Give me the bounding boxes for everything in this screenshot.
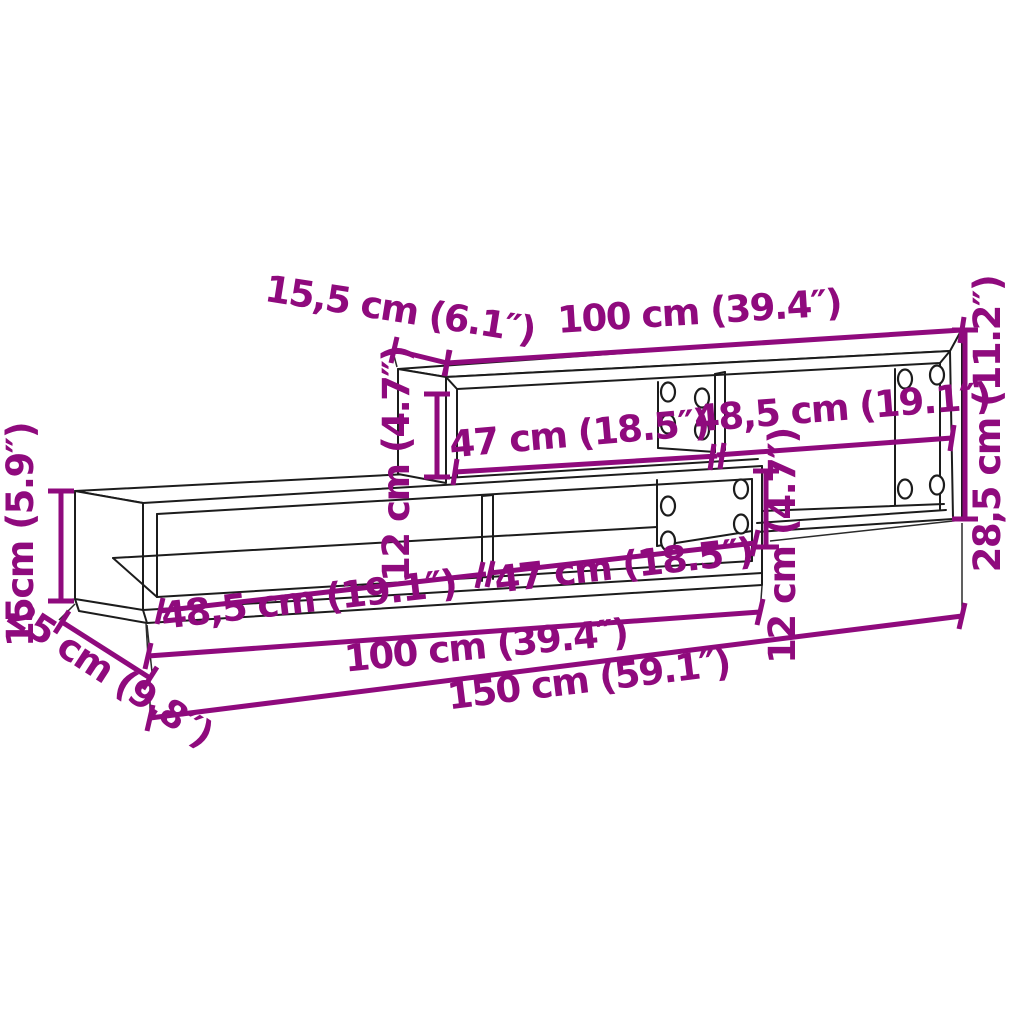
dim-lower-right-compartment-label: 47 cm (18.5″): [492, 530, 755, 602]
screw-hole: [661, 497, 675, 516]
product-dimension-diagram: 15,5 cm (6.1″) 100 cm (39.4″) 28,5 cm (1…: [0, 0, 1024, 1024]
screw-hole: [898, 480, 912, 499]
dim-upper-left-compartment: 47 cm (18.5″): [448, 401, 717, 485]
dim-upper-right-compartment-label: 48,5 cm (19.1″): [692, 374, 991, 440]
dim-lower-inner-height-label: 12 cm (4.7″): [761, 428, 804, 664]
screw-hole: [661, 383, 675, 402]
dim-top-width-label: 100 cm (39.4″): [556, 281, 842, 342]
dim-total-height: 28,5 cm (11.2″): [952, 276, 1009, 573]
dim-upper-inner-height-label: 12 cm (4.7″): [375, 346, 418, 582]
dim-total-height-label: 28,5 cm (11.2″): [966, 276, 1009, 573]
screw-hole: [734, 480, 748, 499]
dim-upper-right-compartment: 48,5 cm (19.1″): [692, 374, 991, 470]
dim-lower-left-compartment-label: 48,5 cm (19.1″): [159, 561, 459, 637]
dim-lower-left-compartment: 48,5 cm (19.1″): [157, 561, 493, 638]
screw-hole: [930, 476, 944, 495]
dim-lower-right-compartment: 47 cm (18.5″): [490, 530, 758, 602]
dim-top-depth-label: 15,5 cm (6.1″): [262, 267, 538, 352]
dim-lower-inner-height: 12 cm (4.7″): [753, 428, 804, 664]
shelf-diagram-canvas: 15,5 cm (6.1″) 100 cm (39.4″) 28,5 cm (1…: [0, 0, 1024, 1024]
